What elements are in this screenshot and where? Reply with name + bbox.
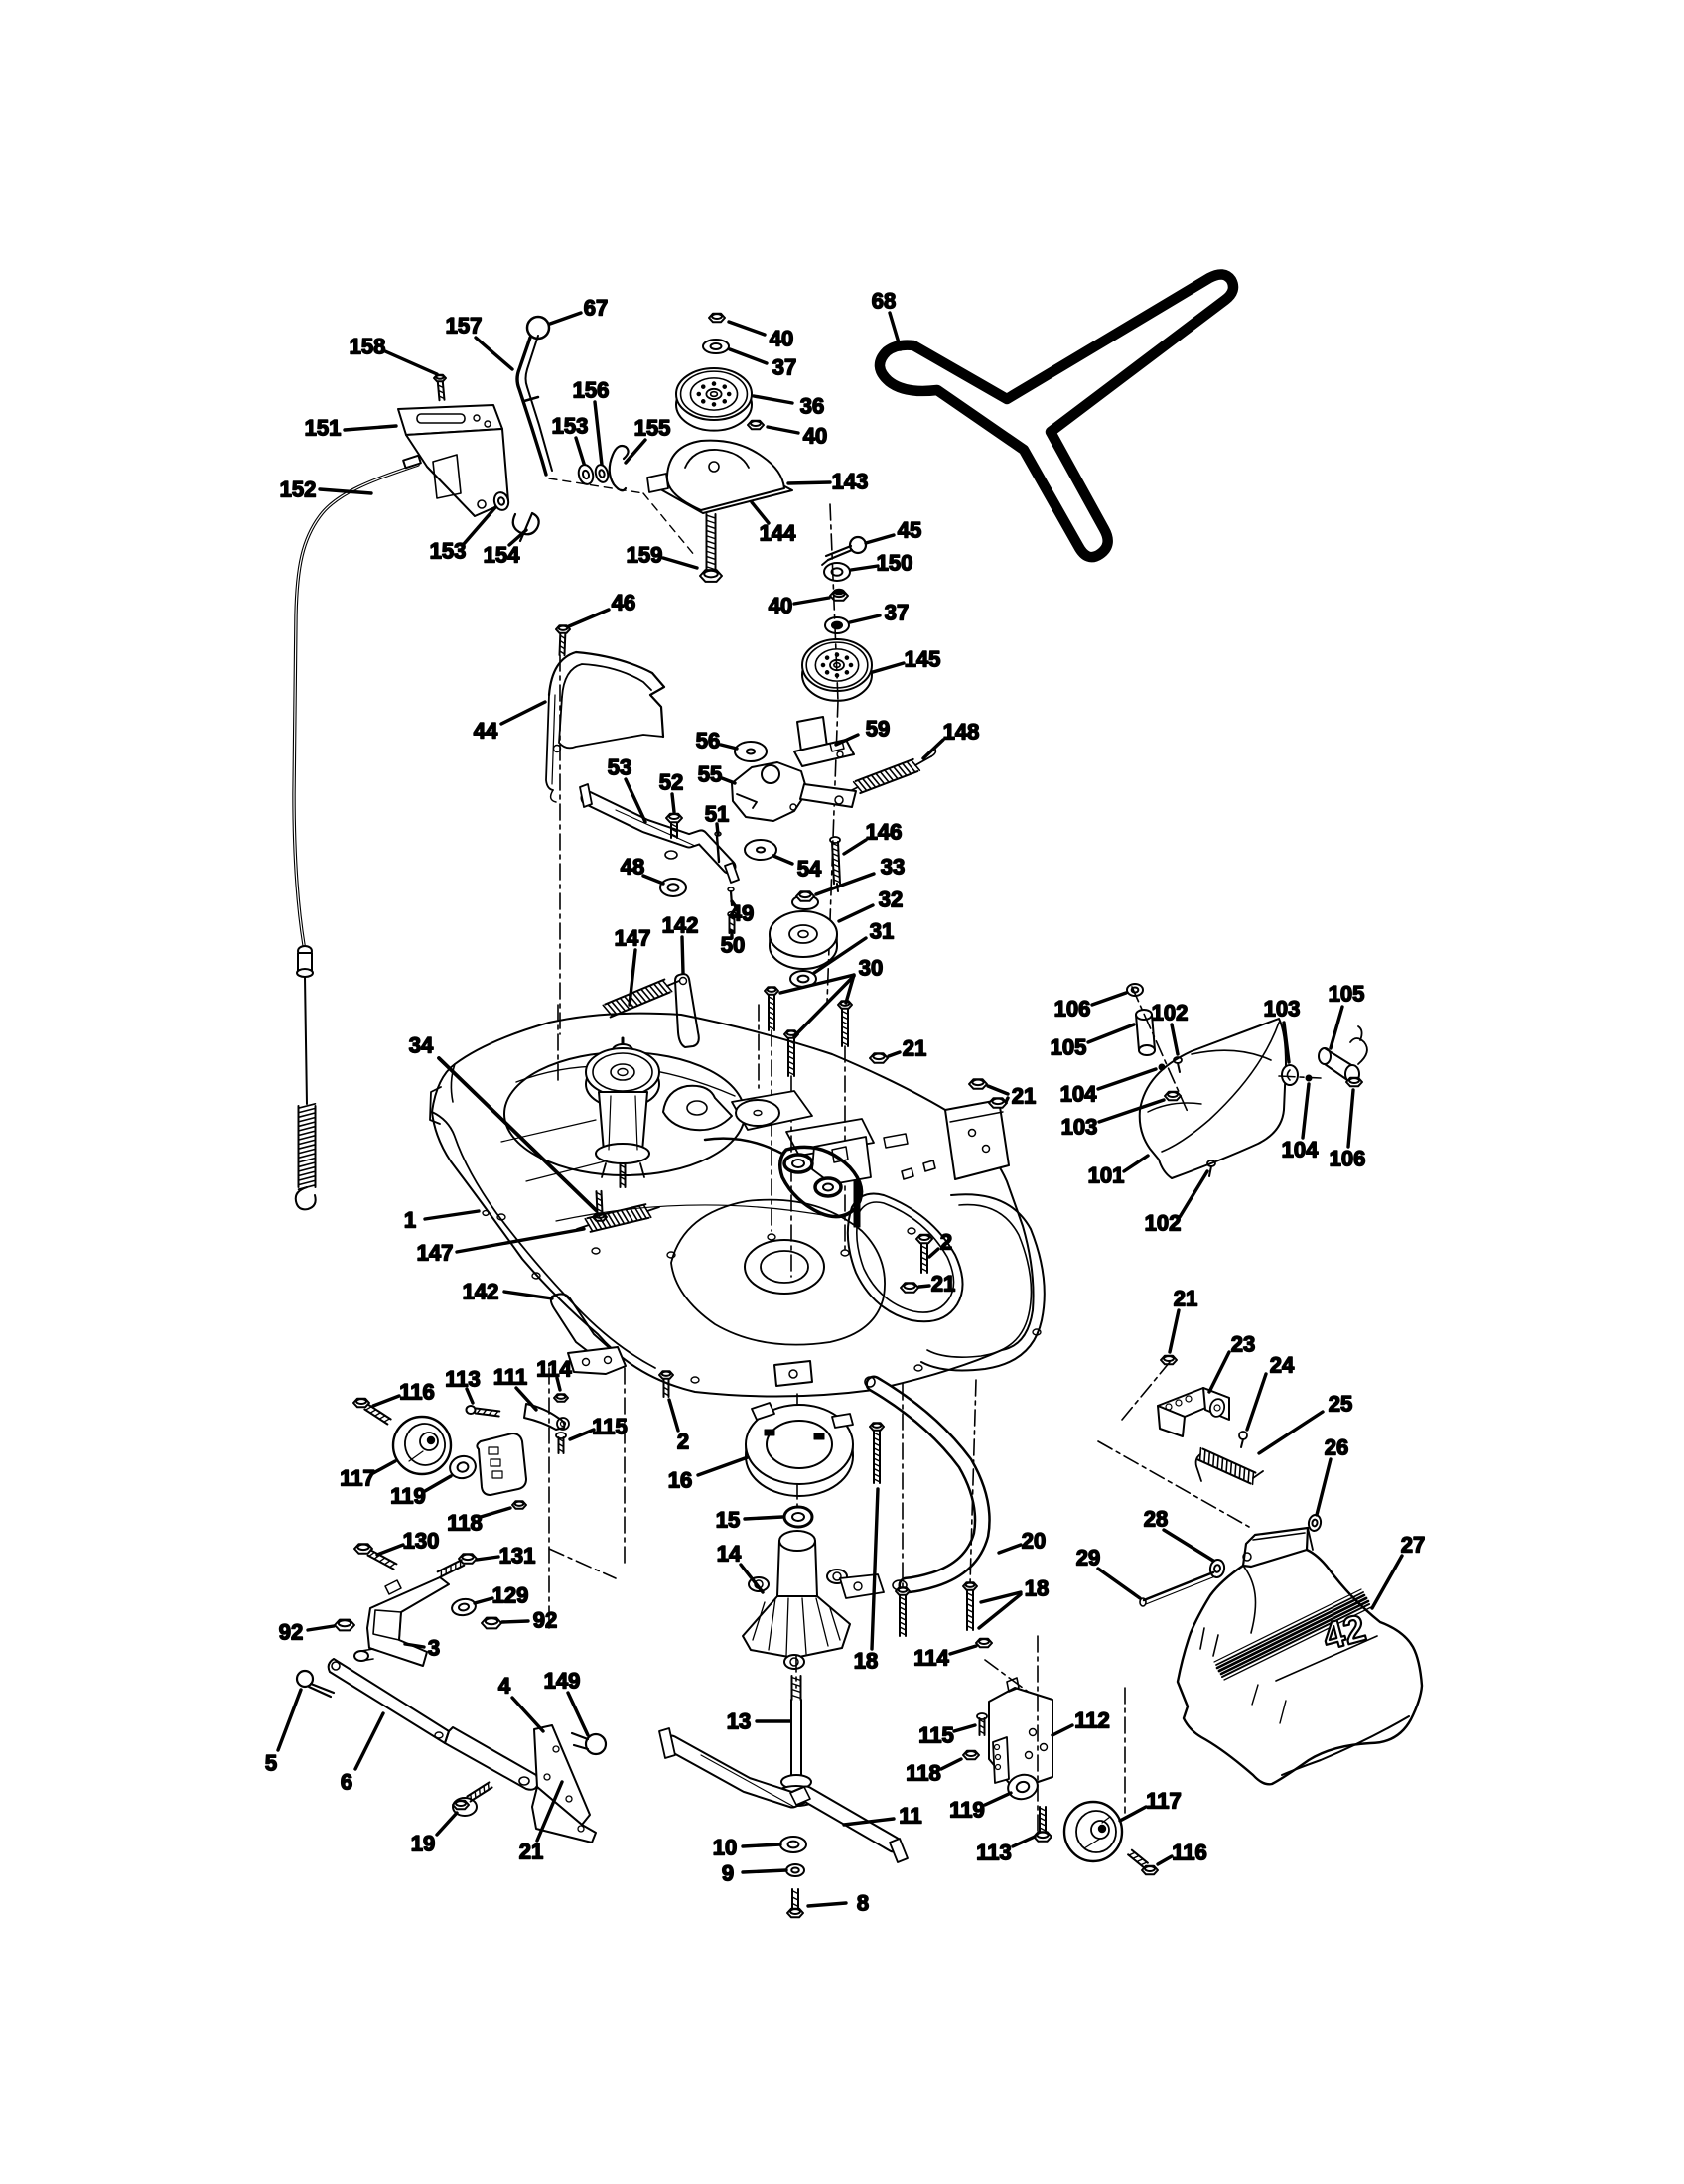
svg-text:55: 55 <box>698 762 722 787</box>
svg-text:21: 21 <box>1012 1084 1036 1109</box>
svg-text:114: 114 <box>913 1646 949 1671</box>
svg-text:37: 37 <box>885 601 909 625</box>
svg-text:115: 115 <box>592 1415 628 1439</box>
svg-text:6: 6 <box>341 1770 352 1795</box>
svg-text:158: 158 <box>350 335 386 359</box>
svg-text:15: 15 <box>716 1508 740 1533</box>
svg-text:13: 13 <box>727 1709 751 1734</box>
svg-text:105: 105 <box>1051 1035 1087 1060</box>
svg-text:155: 155 <box>634 416 671 441</box>
svg-text:147: 147 <box>417 1241 454 1266</box>
svg-text:40: 40 <box>769 594 792 618</box>
svg-text:159: 159 <box>627 543 663 568</box>
svg-text:56: 56 <box>696 729 720 753</box>
svg-text:119: 119 <box>949 1798 985 1823</box>
svg-text:29: 29 <box>1076 1546 1100 1570</box>
svg-text:46: 46 <box>612 591 635 615</box>
svg-text:36: 36 <box>800 394 824 419</box>
svg-text:103: 103 <box>1264 997 1301 1022</box>
svg-text:146: 146 <box>866 820 903 845</box>
svg-text:152: 152 <box>280 478 317 502</box>
svg-text:143: 143 <box>832 470 869 494</box>
svg-text:8: 8 <box>857 1891 869 1916</box>
svg-text:114: 114 <box>536 1357 572 1382</box>
svg-text:115: 115 <box>918 1723 954 1748</box>
svg-text:113: 113 <box>445 1367 481 1392</box>
svg-text:1: 1 <box>404 1208 416 1233</box>
svg-text:21: 21 <box>519 1840 543 1864</box>
svg-text:54: 54 <box>797 857 822 882</box>
svg-text:20: 20 <box>1022 1529 1046 1554</box>
svg-text:130: 130 <box>403 1529 440 1554</box>
svg-text:14: 14 <box>717 1542 742 1567</box>
svg-text:117: 117 <box>1146 1789 1182 1814</box>
svg-text:147: 147 <box>615 926 651 951</box>
svg-text:149: 149 <box>544 1669 581 1694</box>
svg-text:131: 131 <box>499 1544 536 1569</box>
svg-text:21: 21 <box>1174 1287 1197 1311</box>
svg-text:156: 156 <box>573 378 610 403</box>
svg-text:24: 24 <box>1270 1353 1295 1378</box>
svg-text:4: 4 <box>498 1674 511 1699</box>
svg-text:119: 119 <box>390 1484 426 1509</box>
svg-text:59: 59 <box>866 717 890 742</box>
svg-text:23: 23 <box>1231 1332 1255 1357</box>
svg-text:144: 144 <box>760 521 796 546</box>
svg-text:111: 111 <box>493 1365 527 1390</box>
svg-text:106: 106 <box>1054 997 1091 1022</box>
svg-text:27: 27 <box>1401 1533 1425 1558</box>
svg-text:104: 104 <box>1282 1138 1319 1162</box>
svg-text:44: 44 <box>474 719 498 744</box>
svg-text:31: 31 <box>870 919 894 944</box>
svg-text:2: 2 <box>940 1230 952 1255</box>
svg-text:9: 9 <box>722 1861 734 1886</box>
svg-text:34: 34 <box>409 1033 434 1058</box>
svg-text:52: 52 <box>659 770 683 795</box>
svg-text:32: 32 <box>879 887 903 912</box>
svg-text:150: 150 <box>877 551 913 576</box>
svg-text:18: 18 <box>1025 1576 1049 1601</box>
svg-text:30: 30 <box>859 956 883 981</box>
svg-text:11: 11 <box>899 1804 921 1829</box>
svg-text:102: 102 <box>1152 1001 1189 1025</box>
svg-text:101: 101 <box>1088 1163 1125 1188</box>
svg-text:40: 40 <box>770 327 793 351</box>
svg-text:104: 104 <box>1060 1082 1097 1107</box>
svg-text:142: 142 <box>662 913 699 938</box>
svg-text:118: 118 <box>447 1511 483 1536</box>
svg-text:25: 25 <box>1329 1392 1352 1417</box>
svg-text:118: 118 <box>906 1761 941 1786</box>
svg-text:145: 145 <box>905 647 941 672</box>
svg-text:112: 112 <box>1074 1708 1110 1733</box>
svg-text:142: 142 <box>463 1280 499 1304</box>
svg-text:153: 153 <box>430 539 467 564</box>
svg-text:92: 92 <box>279 1620 303 1645</box>
svg-text:48: 48 <box>621 855 644 880</box>
svg-text:151: 151 <box>305 416 342 441</box>
svg-text:40: 40 <box>803 424 827 449</box>
svg-text:154: 154 <box>484 543 520 568</box>
svg-text:129: 129 <box>492 1583 529 1608</box>
svg-text:67: 67 <box>584 296 608 321</box>
svg-text:103: 103 <box>1061 1115 1098 1140</box>
svg-text:106: 106 <box>1330 1147 1366 1171</box>
svg-text:37: 37 <box>772 355 796 380</box>
svg-text:19: 19 <box>411 1832 435 1856</box>
svg-text:16: 16 <box>668 1468 692 1493</box>
svg-text:5: 5 <box>265 1751 277 1776</box>
svg-text:21: 21 <box>931 1272 955 1297</box>
svg-text:28: 28 <box>1144 1507 1168 1532</box>
svg-text:45: 45 <box>898 518 921 543</box>
svg-text:113: 113 <box>976 1841 1012 1865</box>
svg-text:26: 26 <box>1325 1435 1348 1460</box>
svg-text:53: 53 <box>608 755 631 780</box>
svg-text:2: 2 <box>677 1430 689 1454</box>
svg-text:105: 105 <box>1329 982 1365 1007</box>
svg-text:148: 148 <box>943 720 980 745</box>
svg-text:157: 157 <box>446 314 483 339</box>
svg-text:92: 92 <box>533 1608 557 1633</box>
svg-text:10: 10 <box>713 1836 737 1860</box>
svg-text:116: 116 <box>1172 1841 1207 1865</box>
svg-text:116: 116 <box>399 1380 435 1405</box>
svg-text:117: 117 <box>340 1466 375 1491</box>
svg-text:18: 18 <box>854 1649 878 1674</box>
svg-text:3: 3 <box>428 1636 440 1661</box>
svg-text:68: 68 <box>872 289 896 314</box>
svg-text:21: 21 <box>903 1036 926 1061</box>
svg-text:153: 153 <box>552 414 589 439</box>
svg-text:102: 102 <box>1145 1211 1182 1236</box>
svg-text:33: 33 <box>881 855 905 880</box>
